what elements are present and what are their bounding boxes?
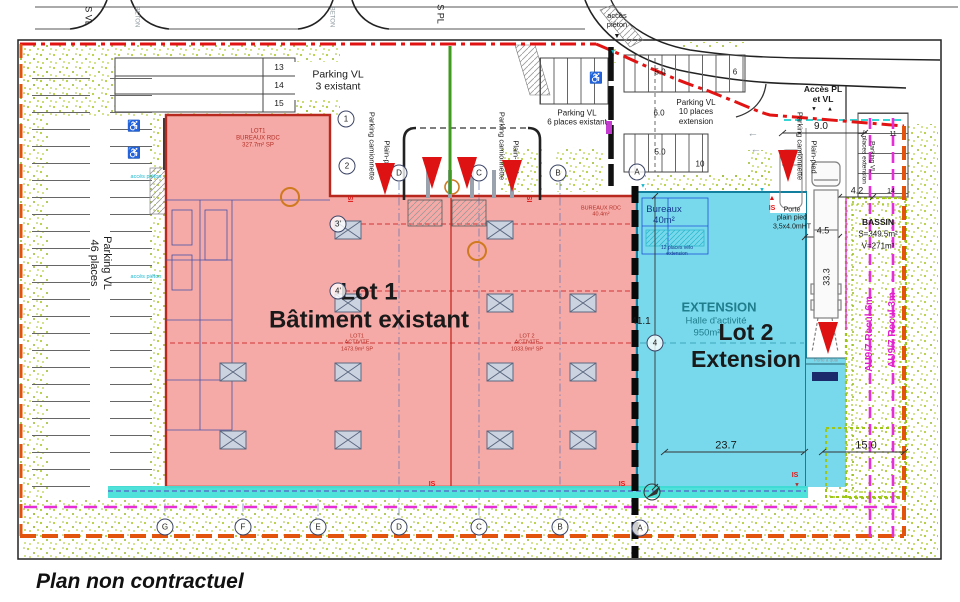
is-marker: IS bbox=[527, 196, 535, 203]
parking-four-label: Parking VL 4 places extension bbox=[860, 130, 875, 184]
traffic-arrow-icon: ← bbox=[751, 144, 762, 157]
dim-33-3: 33.3 bbox=[822, 268, 833, 286]
bureaux-40-4-label: BUREAUX RDC 40.4m² bbox=[581, 206, 621, 219]
dim-9-0: 9.0 bbox=[814, 121, 828, 133]
is-marker: IS bbox=[792, 472, 799, 480]
parking-left-label: Parking VL 46 places bbox=[87, 236, 113, 290]
plan-caption: Plan non contractuel bbox=[36, 570, 244, 594]
red-arrow-icon bbox=[502, 160, 522, 192]
acces-pieton-top-label: accès piéton bbox=[607, 12, 627, 30]
grid-marker-top-b: B bbox=[550, 165, 567, 182]
parking-small-label: Parking VL 3 existant bbox=[312, 69, 363, 94]
acces-pieton-left-1: accès piéton bbox=[131, 174, 162, 180]
dim-6-0-mid: 6.0 bbox=[653, 108, 664, 117]
plain-pied-label: Plain-pied bbox=[809, 140, 818, 173]
lot2-title: Lot 2 Extension bbox=[691, 319, 801, 373]
red-arrow-icon bbox=[457, 157, 477, 189]
dim-5-0-bot: 5.0 bbox=[654, 147, 665, 156]
handicap-icon: ♿ bbox=[589, 73, 603, 86]
acces-pieton-left-2: accès piéton bbox=[131, 274, 162, 280]
stall-number-15: 15 bbox=[274, 98, 283, 108]
road-label-spl: S PL bbox=[435, 4, 446, 24]
road-label-beton-2: BETON bbox=[327, 7, 334, 28]
red-arrow-icon bbox=[422, 157, 442, 189]
parking-six-label: Parking VL 6 places existant bbox=[547, 109, 607, 128]
recul-3m-label: AU9/7 Recul 3m bbox=[887, 292, 899, 368]
is-arrow-icon: ▲ bbox=[769, 195, 776, 203]
stall-number-13: 13 bbox=[274, 62, 283, 72]
handicap-icon: ♿ bbox=[127, 121, 141, 134]
is-marker: IS bbox=[348, 196, 356, 203]
grid-marker-bottom-g: G bbox=[157, 519, 174, 536]
grid-marker-left-1: 1 bbox=[338, 111, 355, 128]
grid-marker-left-4: 4' bbox=[330, 283, 347, 300]
dim-15-0: 15.0 bbox=[855, 440, 876, 453]
lot1-activite-label: LOT1 ACTIVITE 1473.9m² SP bbox=[341, 333, 373, 352]
porte-plain-pied-label: Porte plain pied 3,5x4.0mHT bbox=[773, 207, 811, 232]
bassin-surface: S=349.5m² bbox=[858, 229, 897, 238]
velo-label: 12 places vélo extension bbox=[661, 246, 693, 258]
dim-4-2: 4.2 bbox=[851, 186, 864, 197]
stall-number-11: 11 bbox=[889, 131, 896, 139]
red-arrow-icon bbox=[375, 163, 395, 195]
stall-number-10: 10 bbox=[696, 159, 705, 168]
stall-number-6: 6 bbox=[733, 67, 737, 76]
grid-marker-top-a: A bbox=[629, 164, 646, 181]
grid-marker-bottom-b: B bbox=[552, 519, 569, 536]
grid-marker-bottom-f: F bbox=[235, 519, 252, 536]
grid-marker-axis-4: 4 bbox=[647, 335, 664, 352]
valve-icon: ▼ bbox=[640, 183, 646, 190]
road-label-beton-1: BETON bbox=[132, 7, 139, 28]
grid-marker-bottom-a: A bbox=[632, 520, 649, 537]
acces-pl-vl-up-icon: ▲ bbox=[827, 106, 833, 113]
is-marker: IS bbox=[619, 481, 626, 489]
is-marker: IS bbox=[769, 205, 776, 213]
acces-pl-vl-down-icon: ▼ bbox=[811, 106, 817, 113]
dim-4-5: 4.5 bbox=[817, 226, 830, 237]
bassin-volume: V=271m³ bbox=[862, 241, 895, 250]
grid-marker-left-3: 3' bbox=[330, 216, 347, 233]
stall-number-14: 14 bbox=[274, 80, 283, 90]
lot2-activite-label: LOT 2 ACTIVITE 1033.9m² SP bbox=[511, 333, 543, 352]
bureaux-40-label: Bureaux 40m² bbox=[646, 204, 681, 226]
parking-ten-label: Parking VL 10 places extension bbox=[676, 98, 715, 126]
lot1-title: Lot 1 Bâtiment existant bbox=[269, 279, 469, 336]
red-arrow-icon bbox=[778, 150, 798, 182]
bassin-title: BASSIN bbox=[862, 217, 894, 227]
recul-6m-label: AU9/7 Recul 6m bbox=[864, 296, 876, 372]
grid-marker-bottom-e: E bbox=[310, 519, 327, 536]
stall-number-14b: 14 bbox=[887, 188, 895, 196]
acces-pl-vl-label: Accès PL et VL bbox=[804, 84, 842, 104]
dim-23-7: 23.7 bbox=[715, 440, 736, 453]
lot1-bureaux-rdc-label: LOT1 BUREAUX RDC 327.7m² SP bbox=[236, 128, 280, 149]
valve-icon: ▼ bbox=[759, 187, 765, 194]
red-arrow-icon bbox=[818, 322, 838, 354]
grid-marker-bottom-d: D bbox=[391, 519, 408, 536]
extension-label: EXTENSION bbox=[681, 299, 756, 314]
porte-a-quai-label: Porte à quai bbox=[814, 357, 838, 362]
acces-pieton-arrow-icon: ▼ bbox=[614, 33, 621, 41]
grid-marker-bottom-c: C bbox=[471, 519, 488, 536]
is-marker: IS bbox=[429, 481, 436, 489]
site-plan: S VL BETON S PL BETON accès piéton ▼ Acc… bbox=[0, 0, 960, 602]
dim-41-1: 41.1 bbox=[631, 316, 650, 328]
dim-5-0-top: 5.0 bbox=[654, 67, 665, 76]
traffic-arrow-icon: ← bbox=[748, 128, 759, 141]
is-arrow-icon: ▼ bbox=[794, 482, 800, 489]
handicap-icon: ♿ bbox=[127, 148, 141, 161]
valve-icon: ▼ bbox=[610, 49, 616, 56]
grid-marker-left-2: 2 bbox=[339, 158, 356, 175]
road-label-svl: S VL bbox=[83, 6, 94, 26]
